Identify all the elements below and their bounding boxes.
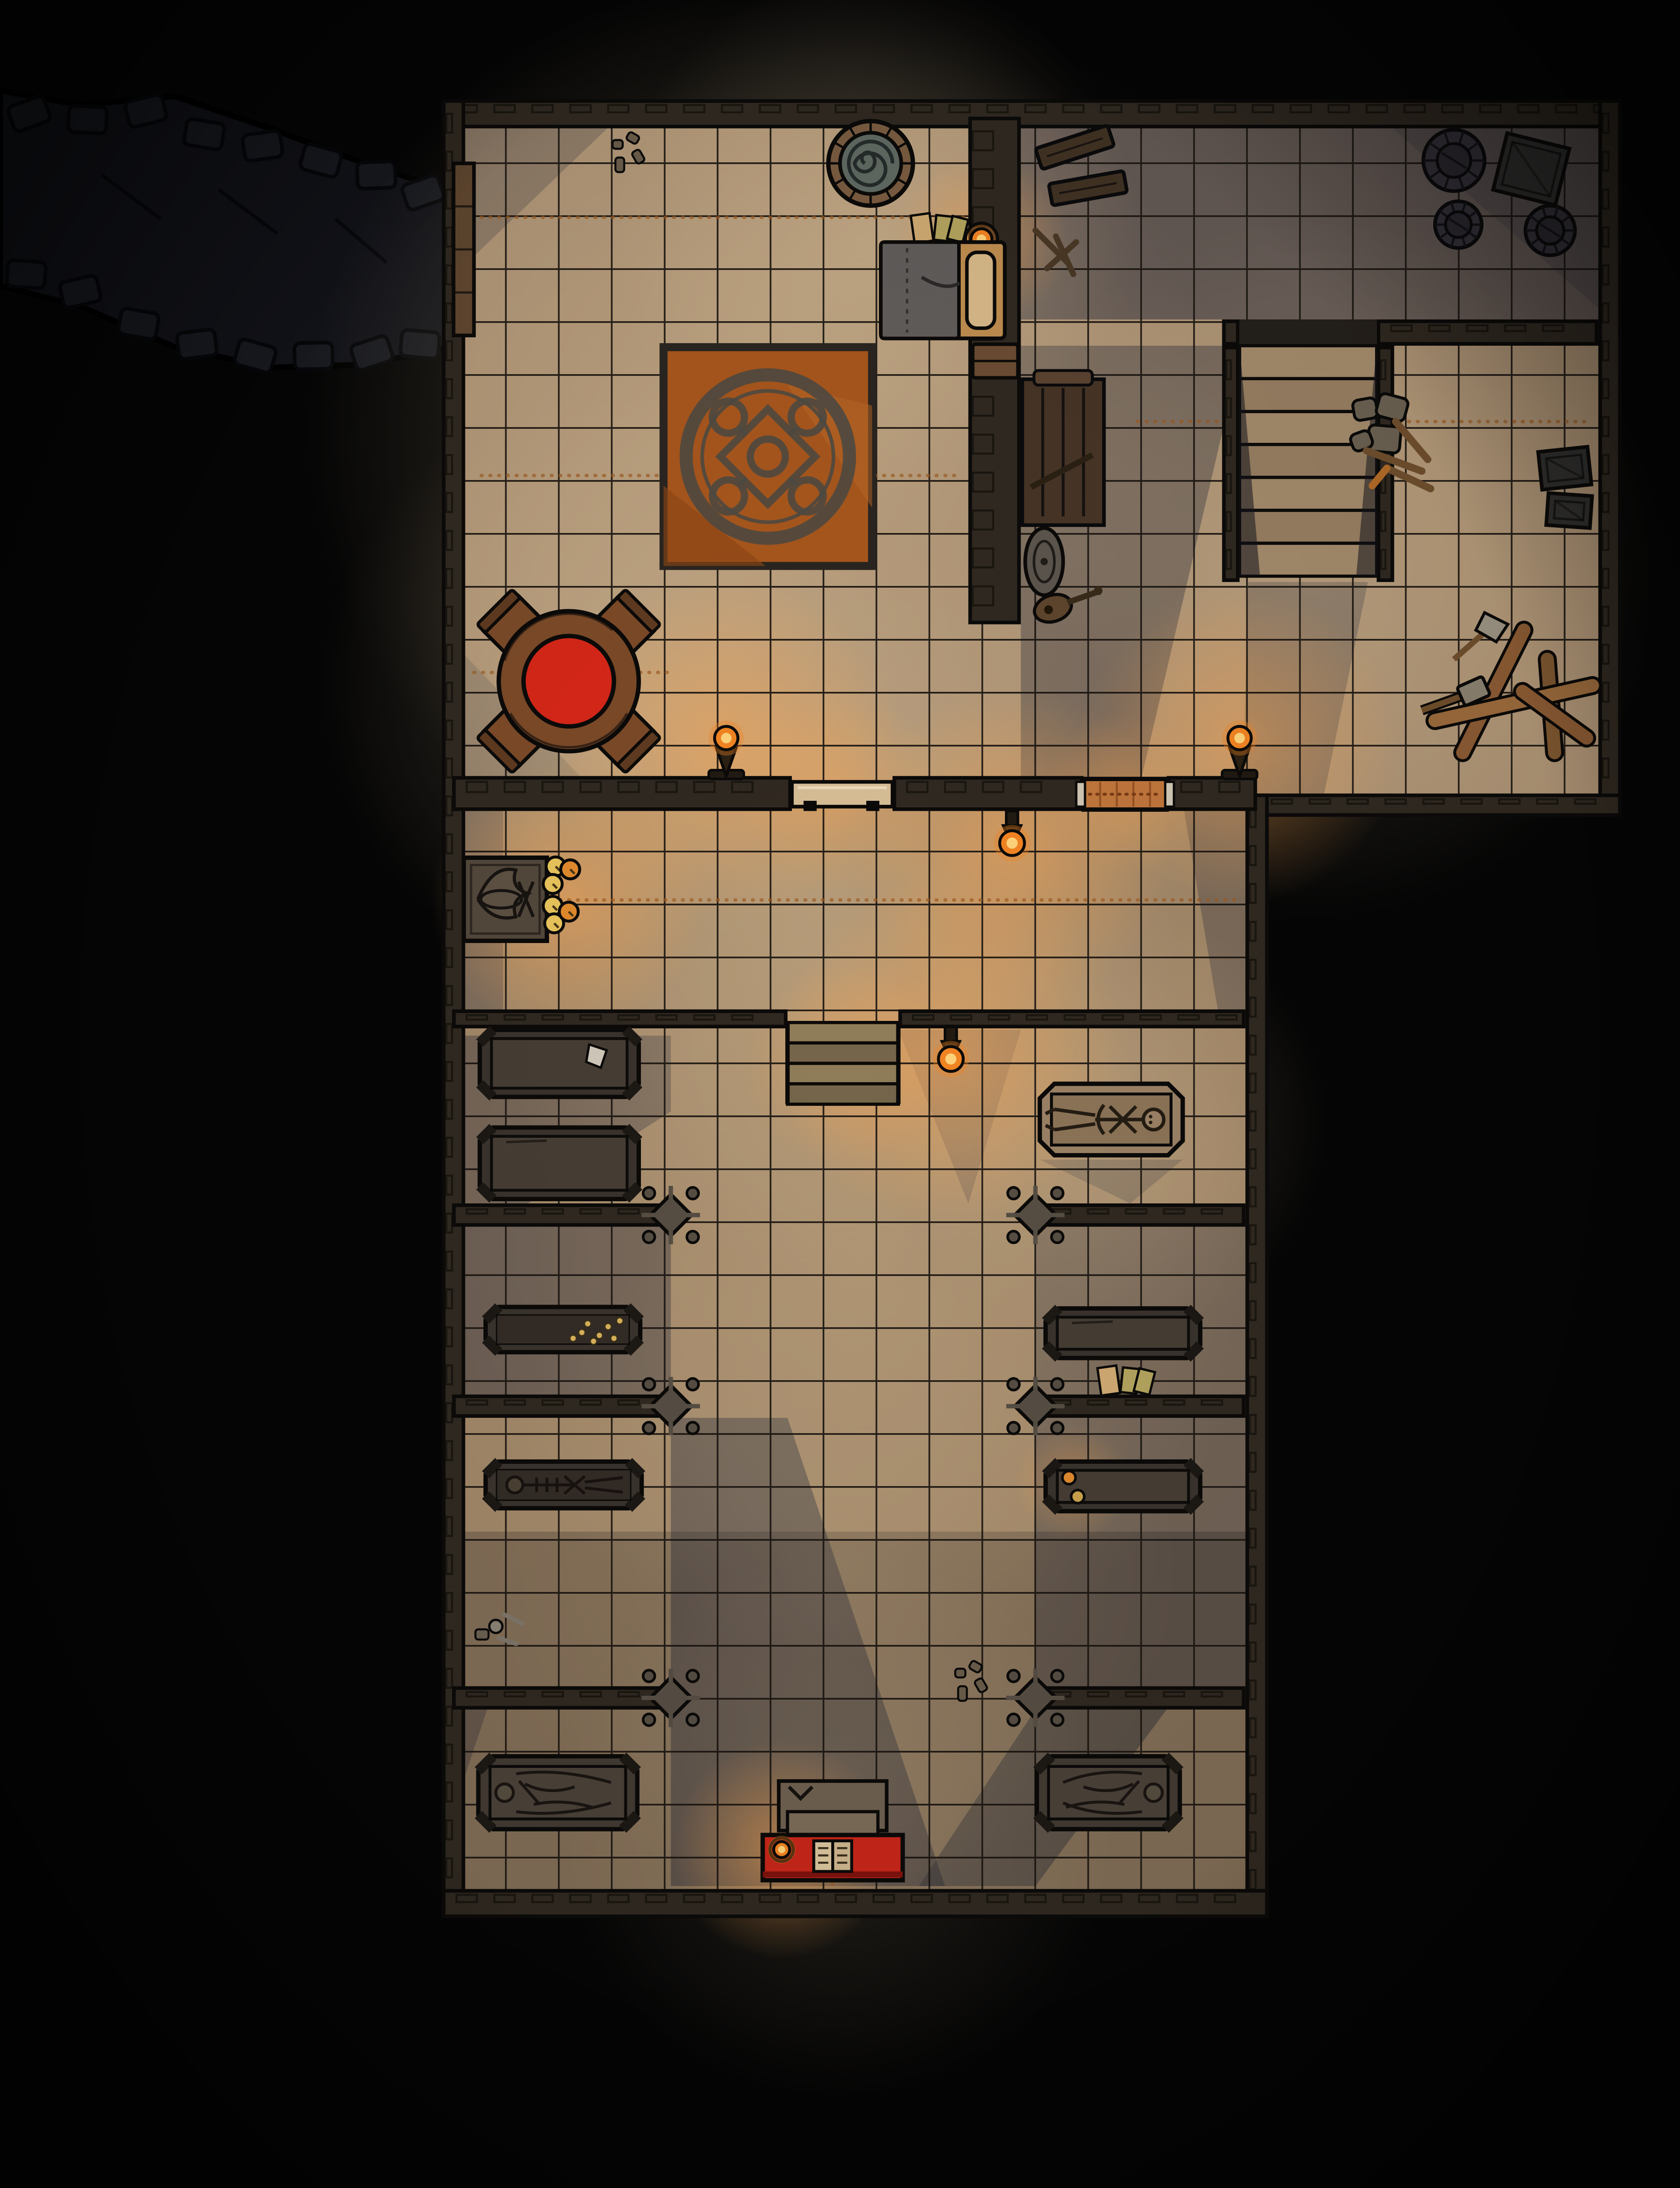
vignette <box>0 0 1680 2188</box>
battlemap-stage <box>0 0 1680 2188</box>
battlemap <box>0 0 1680 2188</box>
